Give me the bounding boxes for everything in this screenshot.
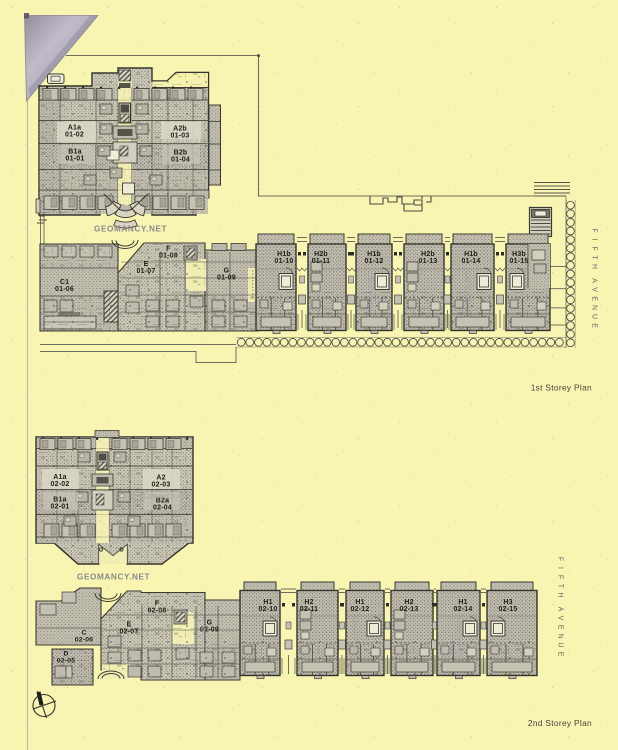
svg-text:E: E bbox=[591, 296, 598, 301]
svg-text:GEOMANCY.NET: GEOMANCY.NET bbox=[77, 573, 150, 582]
svg-text:H: H bbox=[557, 593, 564, 598]
svg-text:E: E bbox=[591, 323, 598, 328]
svg-text:E: E bbox=[557, 625, 564, 630]
svg-text:B1a01-01: B1a01-01 bbox=[66, 149, 85, 163]
svg-text:F: F bbox=[591, 246, 598, 250]
svg-text:GEOMANCY.NET: GEOMANCY.NET bbox=[202, 603, 208, 650]
svg-text:1st Storey Plan: 1st Storey Plan bbox=[531, 383, 592, 393]
svg-text:H2b01-11: H2b01-11 bbox=[312, 251, 331, 265]
svg-text:E: E bbox=[557, 652, 564, 657]
svg-text:U: U bbox=[591, 314, 598, 319]
svg-text:V: V bbox=[557, 616, 564, 621]
svg-text:N: N bbox=[591, 305, 598, 310]
svg-text:GEOMANCY.NET: GEOMANCY.NET bbox=[161, 140, 213, 146]
svg-text:GEOMANCY.NET: GEOMANCY.NET bbox=[138, 495, 190, 501]
svg-text:I: I bbox=[557, 567, 564, 569]
svg-text:GEOMANCY.NET: GEOMANCY.NET bbox=[368, 271, 374, 318]
svg-text:U: U bbox=[557, 643, 564, 648]
svg-text:A2b01-03: A2b01-03 bbox=[171, 126, 190, 140]
svg-text:F: F bbox=[557, 575, 564, 579]
svg-text:GEOMANCY.NET: GEOMANCY.NET bbox=[353, 615, 359, 662]
svg-text:H3b01-15: H3b01-15 bbox=[510, 251, 529, 265]
svg-text:H1b01-14: H1b01-14 bbox=[462, 251, 481, 265]
svg-text:B1a02-01: B1a02-01 bbox=[51, 497, 70, 511]
svg-text:A: A bbox=[591, 278, 598, 283]
svg-text:2nd Storey Plan: 2nd Storey Plan bbox=[528, 718, 592, 728]
svg-text:I: I bbox=[591, 239, 598, 241]
svg-text:GEOMANCY.NET: GEOMANCY.NET bbox=[465, 271, 471, 318]
svg-text:A1a02-02: A1a02-02 bbox=[51, 474, 70, 488]
svg-text:B2b01-04: B2b01-04 bbox=[171, 150, 190, 164]
svg-text:GEOMANCY.NET: GEOMANCY.NET bbox=[457, 615, 463, 662]
svg-text:GEOMANCY.NET: GEOMANCY.NET bbox=[94, 225, 167, 234]
svg-text:F: F bbox=[557, 557, 564, 561]
svg-text:H1b01-12: H1b01-12 bbox=[365, 251, 384, 265]
svg-text:H: H bbox=[591, 264, 598, 269]
svg-text:A1a01-02: A1a01-02 bbox=[65, 125, 84, 139]
svg-text:F: F bbox=[591, 228, 598, 232]
svg-text:N: N bbox=[557, 634, 564, 639]
svg-text:V: V bbox=[591, 287, 598, 292]
svg-text:A: A bbox=[557, 607, 564, 612]
svg-text:H2b01-13: H2b01-13 bbox=[419, 251, 438, 265]
svg-text:H1b01-10: H1b01-10 bbox=[275, 251, 294, 265]
